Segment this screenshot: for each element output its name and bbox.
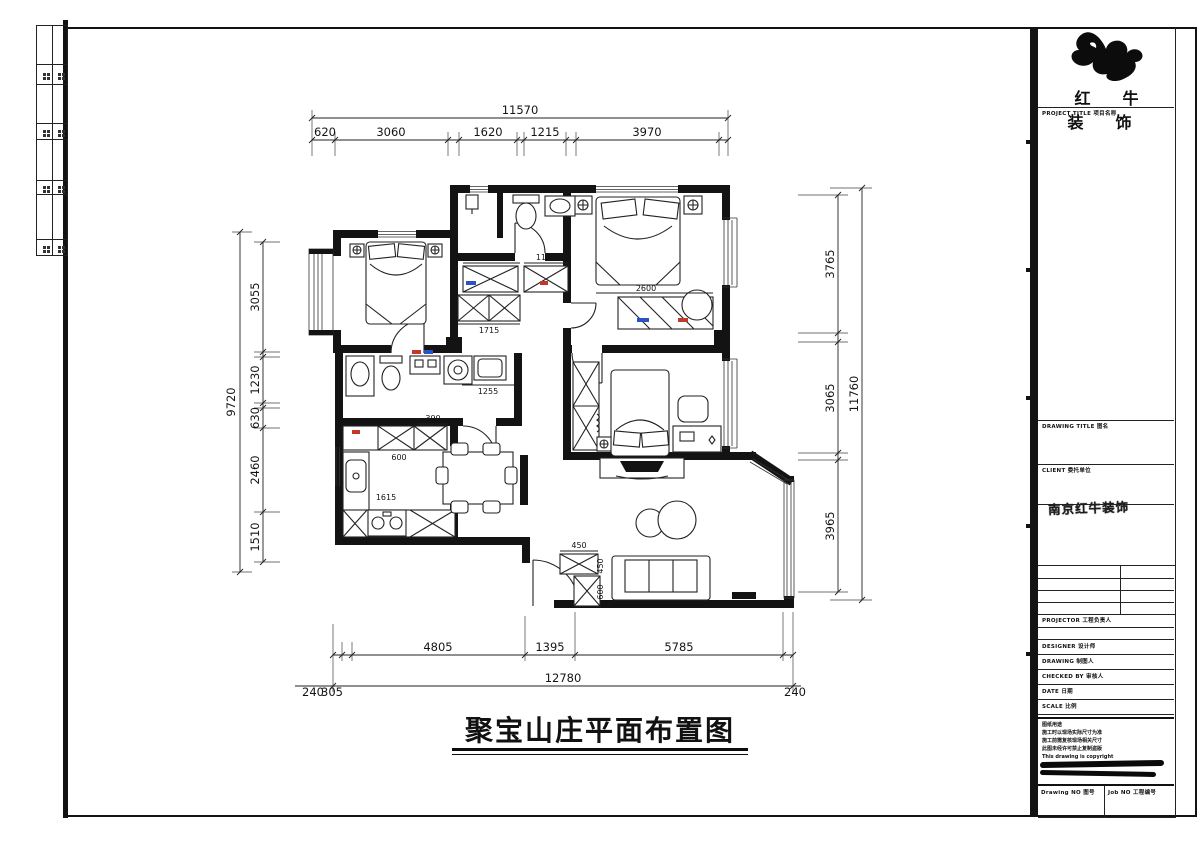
dim-hall-closet: 1375 [481,253,501,262]
dim-kitchen-cab-depth: 600 [391,453,406,462]
dim-bottom-seg1: 4805 [423,640,452,654]
dim-right-seg1: 3765 [823,249,837,278]
dim-left-seg4: 2460 [248,455,262,484]
company-stamp: 南京红牛装饰 [1048,495,1169,518]
drawing-title: 聚宝山庄平面布置图 [410,709,790,749]
dim-kitchen-cab: 390 [425,414,440,423]
living-room-furniture [600,458,710,600]
dim-bottom-seg3: 5785 [664,640,693,654]
date-label: DATE 日期 [1042,687,1073,695]
dim-top-seg1: 620 [314,125,336,139]
dimensions-left: 9720 3055 1230 630 2460 1510 [224,229,280,575]
dim-entry-cab-depth2: 600 [596,584,605,599]
dim-hall-closet-depth: 1715 [479,326,499,335]
dim-master-wardrobe: 2600 [636,284,656,293]
checked-by-label: CHECKED BY 审核人 [1042,672,1103,680]
dim-top-seg5: 3970 [632,125,661,139]
dim-right-overall: 11760 [847,376,861,413]
hall-closets [458,266,568,321]
projector-label: PROJECTOR 工程负责人 [1042,616,1111,624]
dim-left-overall: 9720 [224,387,238,416]
dim-right-seg2: 3065 [823,383,837,412]
number-row: Drawing NO 图号 Job NO 工程编号 [1038,786,1175,818]
drawing-no-label: Drawing NO 图号 [1041,788,1095,796]
dim-kitchen-counter: 1615 [376,493,396,502]
dim-left-seg2: 1230 [248,365,262,394]
scale-label: SCALE 比例 [1042,702,1077,710]
note-line-1: 施工时以现场实际尺寸为准 [1042,729,1174,737]
designer-label: DESIGNER 设计师 [1042,642,1095,650]
bed-bedroom1 [366,242,426,324]
wardrobe-master [618,290,713,329]
dim-top-seg4: 1215 [530,125,559,139]
dim-hall-closet2: 1120 [536,253,556,262]
dim-entry-cab-depth: 450 [596,558,605,573]
dim-bottom-offset-right: 240 [784,685,806,699]
project-title-label: PROJECT TITLE 项目名称 [1042,109,1117,117]
notes-title: 图纸用途 [1042,721,1174,729]
dim-top-seg2: 3060 [376,125,405,139]
dim-right-seg3: 3965 [823,511,837,540]
dim-entry-cab: 450 [571,541,586,550]
note-line-2: 施工前需复核现场相关尺寸 [1042,737,1174,745]
drawing-sheet: 1375 1120 1715 2600 1255 390 600 1615 45… [0,0,1200,845]
dim-left-seg3: 630 [248,407,262,429]
notes-block: 图纸用途 施工时以现场实际尺寸为准 施工前需复核现场相关尺寸 此图未经许可禁止复… [1038,717,1174,786]
entry-cabinets [560,554,600,606]
dim-left-seg1: 3055 [248,282,262,311]
bed-master [596,197,680,285]
title-underline-thin [452,754,748,755]
dim-bottom-seg2: 1395 [535,640,564,654]
drawing-title-label: DRAWING TITLE 图名 [1042,422,1108,430]
dim-bottom-overall: 12780 [545,671,582,685]
revision-table [1038,565,1175,615]
dim-left-seg5: 1510 [248,522,262,551]
title-block: 红 牛 装 饰 PROJECT TITLE 项目名称 DRAWING TITLE… [1038,27,1176,818]
rednbull-logo-icon [1066,31,1146,85]
client-label: CLIENT 委托单位 [1042,466,1091,474]
dining-set [436,443,517,513]
bathroom-top-fixtures [466,195,575,229]
dimensions-top: 11570 620 3060 1620 1215 3970 [309,103,731,156]
redacted-note-smear [1040,770,1156,777]
dim-top-overall: 11570 [502,103,539,117]
dim-bath-vanity: 1255 [478,387,498,396]
dim-top-seg3: 1620 [473,125,502,139]
title-underline-thick [452,748,748,751]
note-line-3: 此图未经许可禁止复制盗版 [1042,745,1174,753]
bedroom3-furniture [573,362,721,456]
redacted-note-smear [1040,760,1164,768]
dimensions-bottom: 4805 1395 5785 12780 240 305 240 [295,612,806,699]
dimensions-right: 3765 3065 3965 11760 [798,185,872,603]
drawing-by-label: DRAWING 制图人 [1042,657,1094,665]
job-no-label: Job NO 工程编号 [1108,788,1156,796]
dim-bottom-offset-left2: 305 [321,685,343,699]
